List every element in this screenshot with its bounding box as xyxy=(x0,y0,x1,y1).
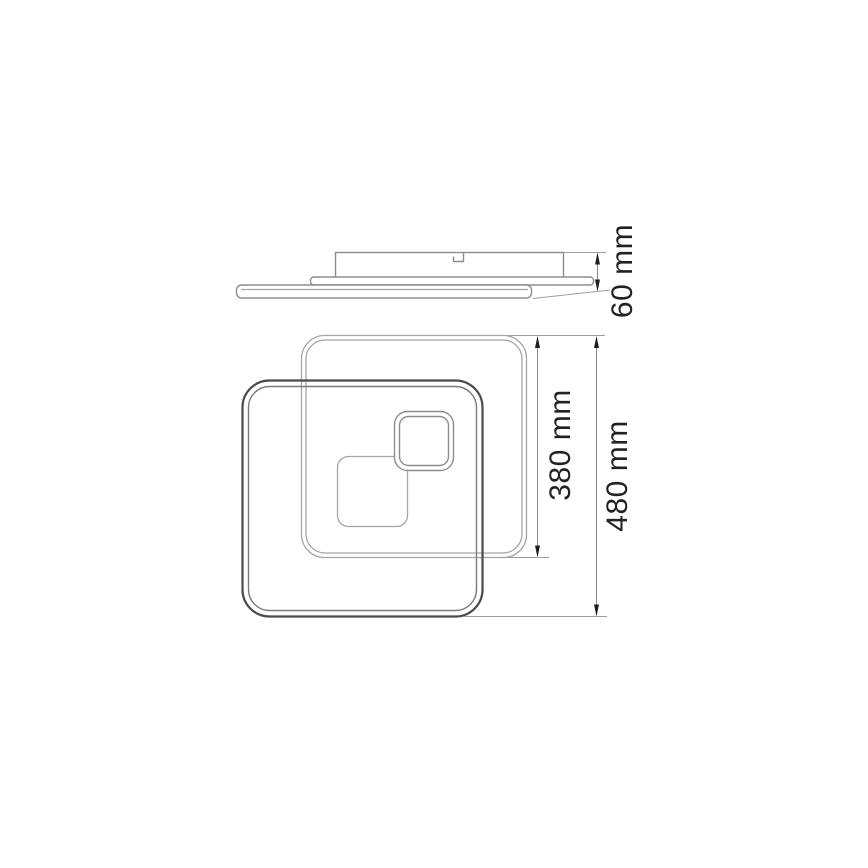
driver-housing xyxy=(336,253,564,278)
front-panel-profile xyxy=(237,285,532,298)
small-led-ring-outer xyxy=(395,412,454,471)
dimension-label-60mm: 60 mm xyxy=(608,224,638,318)
side-profile-view xyxy=(237,253,594,299)
arrowhead-down xyxy=(535,546,540,558)
arrowhead-down xyxy=(594,605,599,617)
center-led-square xyxy=(338,457,408,527)
technical-drawing-canvas: 60 mm 380 mm 480 mm xyxy=(0,0,868,868)
arrowhead-up xyxy=(594,336,599,348)
dimension-480mm xyxy=(463,336,607,617)
extension-line-angled xyxy=(533,290,610,299)
arrowhead-up xyxy=(595,253,600,265)
arrowhead-up xyxy=(535,336,540,348)
plan-view xyxy=(243,336,527,617)
arrowhead-down xyxy=(595,280,600,292)
mounting-plate xyxy=(311,277,594,285)
dimension-label-380mm: 380 mm xyxy=(546,389,576,500)
dimension-label-480mm: 480 mm xyxy=(603,420,633,531)
drawing-linework xyxy=(0,0,868,868)
